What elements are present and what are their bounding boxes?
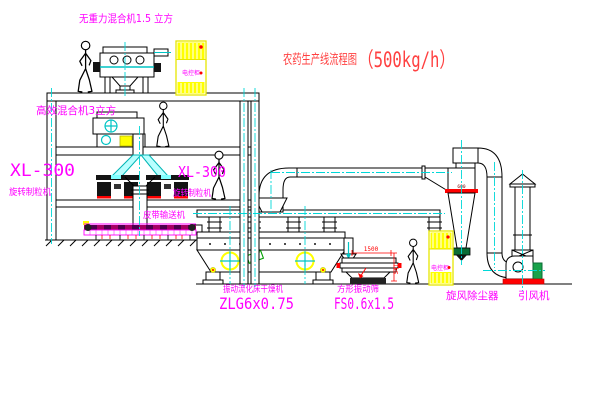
label-fan: 引风机	[518, 289, 550, 302]
y-chute	[112, 155, 168, 176]
label-granulator-left-model: XL-300	[10, 161, 75, 181]
diagram-title: 农药生产线流程图	[283, 52, 357, 68]
cabinet-label: 电控柜	[431, 264, 449, 272]
exhaust-duct	[197, 166, 448, 232]
label-second-mixer: 高效混合机3立方	[36, 104, 116, 117]
label-belt-conveyor: 皮带输送机	[143, 209, 185, 221]
indicator-light	[448, 266, 451, 269]
control-cabinet-lower: 电控柜	[429, 231, 453, 285]
worker-top-floor	[78, 41, 92, 92]
diagram-title-capacity: （500kg/h）	[358, 48, 455, 72]
induced-draft-fan	[503, 174, 544, 284]
top-mixer	[93, 47, 171, 100]
cyclone-outlet-elbow	[478, 148, 502, 177]
label-granulator-middle-name: 旋转制粒机	[173, 187, 211, 199]
label-dryer-model: ZLG6x0.75	[219, 294, 294, 313]
indicator-light	[446, 235, 449, 238]
label-top-mixer: 无重力混合机1.5 立方	[79, 12, 173, 25]
indicator-light	[199, 45, 203, 49]
label-granulator-middle-model: XL-300	[178, 163, 226, 181]
cabinet-label: 电控柜	[182, 69, 200, 77]
indicator-light	[200, 72, 203, 75]
fluid-bed-dryer	[191, 225, 345, 284]
label-sieve-model: FS0.6x1.5	[334, 294, 394, 313]
vibrating-sieve: 1500 541	[337, 238, 402, 284]
label-granulator-left-name: 旋转制粒机	[9, 186, 51, 198]
dim-height: 541	[393, 263, 400, 274]
cyclone-inlet-reducer	[425, 168, 448, 191]
fan-motor	[533, 263, 542, 279]
cyclone-separator: 600	[445, 148, 512, 278]
worker-second-floor	[157, 102, 169, 146]
cyclone-outlet-connector	[453, 148, 478, 163]
fan-base	[503, 279, 544, 284]
diagram-canvas: 电控柜	[0, 0, 600, 403]
control-cabinet-upper: 电控柜	[176, 41, 206, 95]
dim-length: 1500	[364, 246, 379, 253]
pesticide-production-line-diagram: 电控柜	[0, 0, 600, 403]
worker-outdoor	[407, 239, 419, 283]
label-cyclone: 旋风除尘器	[446, 289, 499, 302]
